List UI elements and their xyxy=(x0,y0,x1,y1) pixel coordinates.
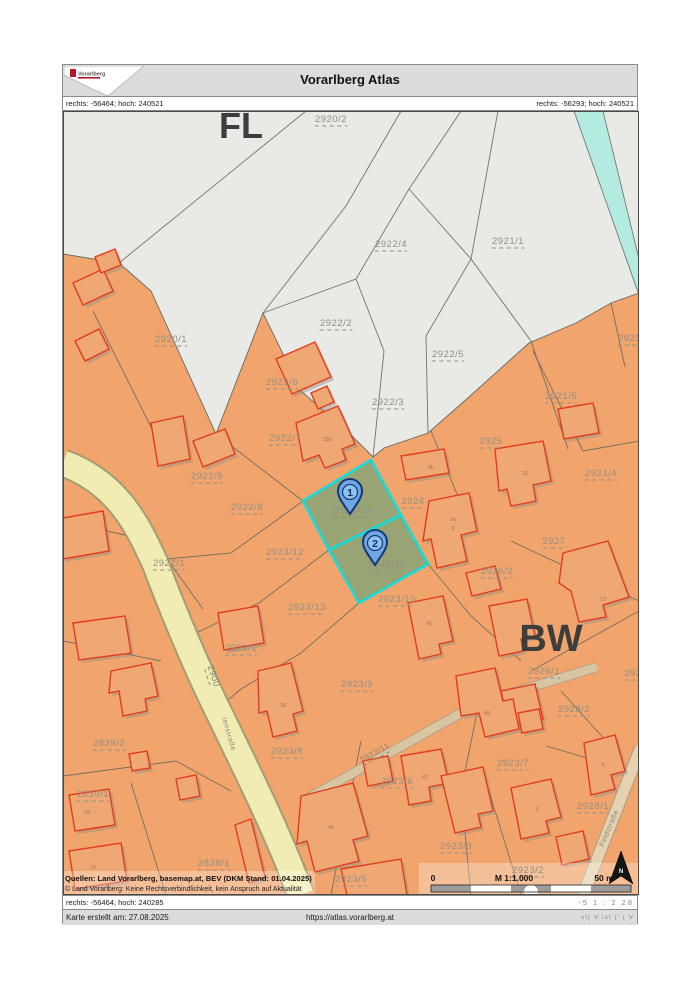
parcel-label: 2922/3 xyxy=(372,397,404,408)
parcel-label: 2922/2 xyxy=(320,318,352,329)
info-bar-faded-text: st( V ist (' ( V xyxy=(581,914,634,921)
parcel-label: 2926/2 xyxy=(481,566,513,577)
building-number: 49 xyxy=(484,711,490,717)
coord-top-left: rechts: -56464; hoch: 240521 xyxy=(66,99,164,108)
zone-label-fl: FL xyxy=(219,111,263,146)
parcel-label: 2923/5 xyxy=(335,874,367,885)
parcel-label: 2928/2 xyxy=(558,704,590,715)
building xyxy=(176,775,200,800)
parcel-label: 2923/1 xyxy=(225,643,257,654)
building xyxy=(556,831,589,865)
building-number: 15 xyxy=(522,471,528,477)
building-number: 43 xyxy=(426,621,432,627)
building-number: 9b xyxy=(428,465,434,471)
parcel-label: 2923/6 xyxy=(381,776,413,787)
building xyxy=(151,416,190,466)
parcel-label: 2923/13 xyxy=(288,602,326,613)
parcel-label: 2922/7 xyxy=(269,433,301,444)
parcel-label: 2926/1 xyxy=(528,666,560,677)
building-number: 5 xyxy=(602,763,605,769)
building-number: 18 xyxy=(84,810,90,816)
building-number: 20 xyxy=(90,865,96,871)
parcel-label: 2923/7 xyxy=(497,758,529,769)
header-bar: Vorarlberg Vorarlberg Atlas xyxy=(63,65,637,97)
coordinate-bar-bottom: rechts: -56464; hoch: 240285 -5 1 : 2 28 xyxy=(63,895,637,910)
coord-bottom-right-partial: -5 1 : 2 28 xyxy=(578,898,634,907)
building-number: 39 xyxy=(280,703,286,709)
scale-segment xyxy=(431,885,471,892)
parcel-label: 2838/1 xyxy=(198,858,230,869)
parcel-label: 2921/ xyxy=(618,333,639,344)
map-svg: 2920/22922/42921/12920/12922/22922/52921… xyxy=(63,111,639,895)
parcel-label: 2920/2 xyxy=(315,114,347,125)
north-label: N xyxy=(619,869,623,875)
parcel-label: 2921/4 xyxy=(585,468,617,479)
parcel-label: 2921/5 xyxy=(545,391,577,402)
building-number: 47 xyxy=(422,775,428,781)
parcel-label: 2839/1 xyxy=(77,789,109,800)
parcel-label: 2920/1 xyxy=(155,334,187,345)
parcel-label: 2925 xyxy=(479,436,502,447)
parcel-label: 2928/1 xyxy=(577,801,609,812)
parcel-label: 2839/2 xyxy=(93,738,125,749)
page-title: Vorarlberg Atlas xyxy=(63,72,637,87)
parcel-label: 2923/12 xyxy=(266,547,304,558)
scale-segment xyxy=(591,885,631,892)
parcel-label: 2922/5 xyxy=(432,349,464,360)
parcel-label: 2923/8 xyxy=(271,746,303,757)
info-bar: Karte erstellt am: 27.08.2025 https://at… xyxy=(63,910,637,925)
coord-top-right: rechts: -56293; hoch: 240521 xyxy=(536,99,634,108)
coord-bottom-left: rechts: -56464; hoch: 240285 xyxy=(66,898,164,907)
parcel-label: 2922/1 xyxy=(153,558,185,569)
source-line-2: © Land Vorarlberg: Keine Rechtsverbindli… xyxy=(65,885,302,893)
building-number: 3 xyxy=(536,807,539,813)
zone-label-bw: BW xyxy=(519,618,582,660)
building-number: 13 xyxy=(600,597,606,603)
parcel-label: 2922/4 xyxy=(375,239,407,250)
building-number: 9a xyxy=(450,517,456,523)
building xyxy=(518,709,543,733)
scale-ratio-label: M 1:1.000 xyxy=(495,873,534,883)
scale-zero-label: 0 xyxy=(431,873,436,883)
marker-number: 1 xyxy=(347,487,353,499)
parcel-label: 2924 xyxy=(401,496,424,507)
building xyxy=(558,403,599,439)
parcel-label: 2922/6 xyxy=(266,377,298,388)
parcel-label: 2923/9 xyxy=(341,679,373,690)
building-number: 40 xyxy=(328,825,334,831)
building xyxy=(73,616,131,660)
scale-segment xyxy=(471,885,511,892)
map-canvas: 2920/22922/42921/12920/12922/22922/52921… xyxy=(63,111,639,895)
parcel-label: 292 xyxy=(624,668,639,679)
print-page: Vorarlberg Vorarlberg Atlas rechts: -564… xyxy=(62,64,638,924)
parcel-label: 2923/3 xyxy=(440,841,472,852)
building-number: 9 xyxy=(452,526,455,532)
source-line-1: Quellen: Land Vorarlberg, basemap.at, BE… xyxy=(65,874,312,883)
parcel-label: 2921/1 xyxy=(492,236,524,247)
parcel-label: 2927 xyxy=(542,536,565,547)
building-number: 33b xyxy=(323,437,332,443)
parcel-label: 2923/10 xyxy=(378,594,416,605)
building xyxy=(63,511,109,559)
marker-number: 2 xyxy=(372,538,378,550)
coordinate-bar-top: rechts: -56464; hoch: 240521 rechts: -56… xyxy=(63,97,637,111)
parcel-label: 2922/8 xyxy=(231,502,263,513)
parcel-label: 2922/9 xyxy=(191,471,223,482)
scale-segment xyxy=(551,885,591,892)
atlas-url: https://atlas.vorarlberg.at xyxy=(63,913,637,922)
building xyxy=(129,751,150,771)
